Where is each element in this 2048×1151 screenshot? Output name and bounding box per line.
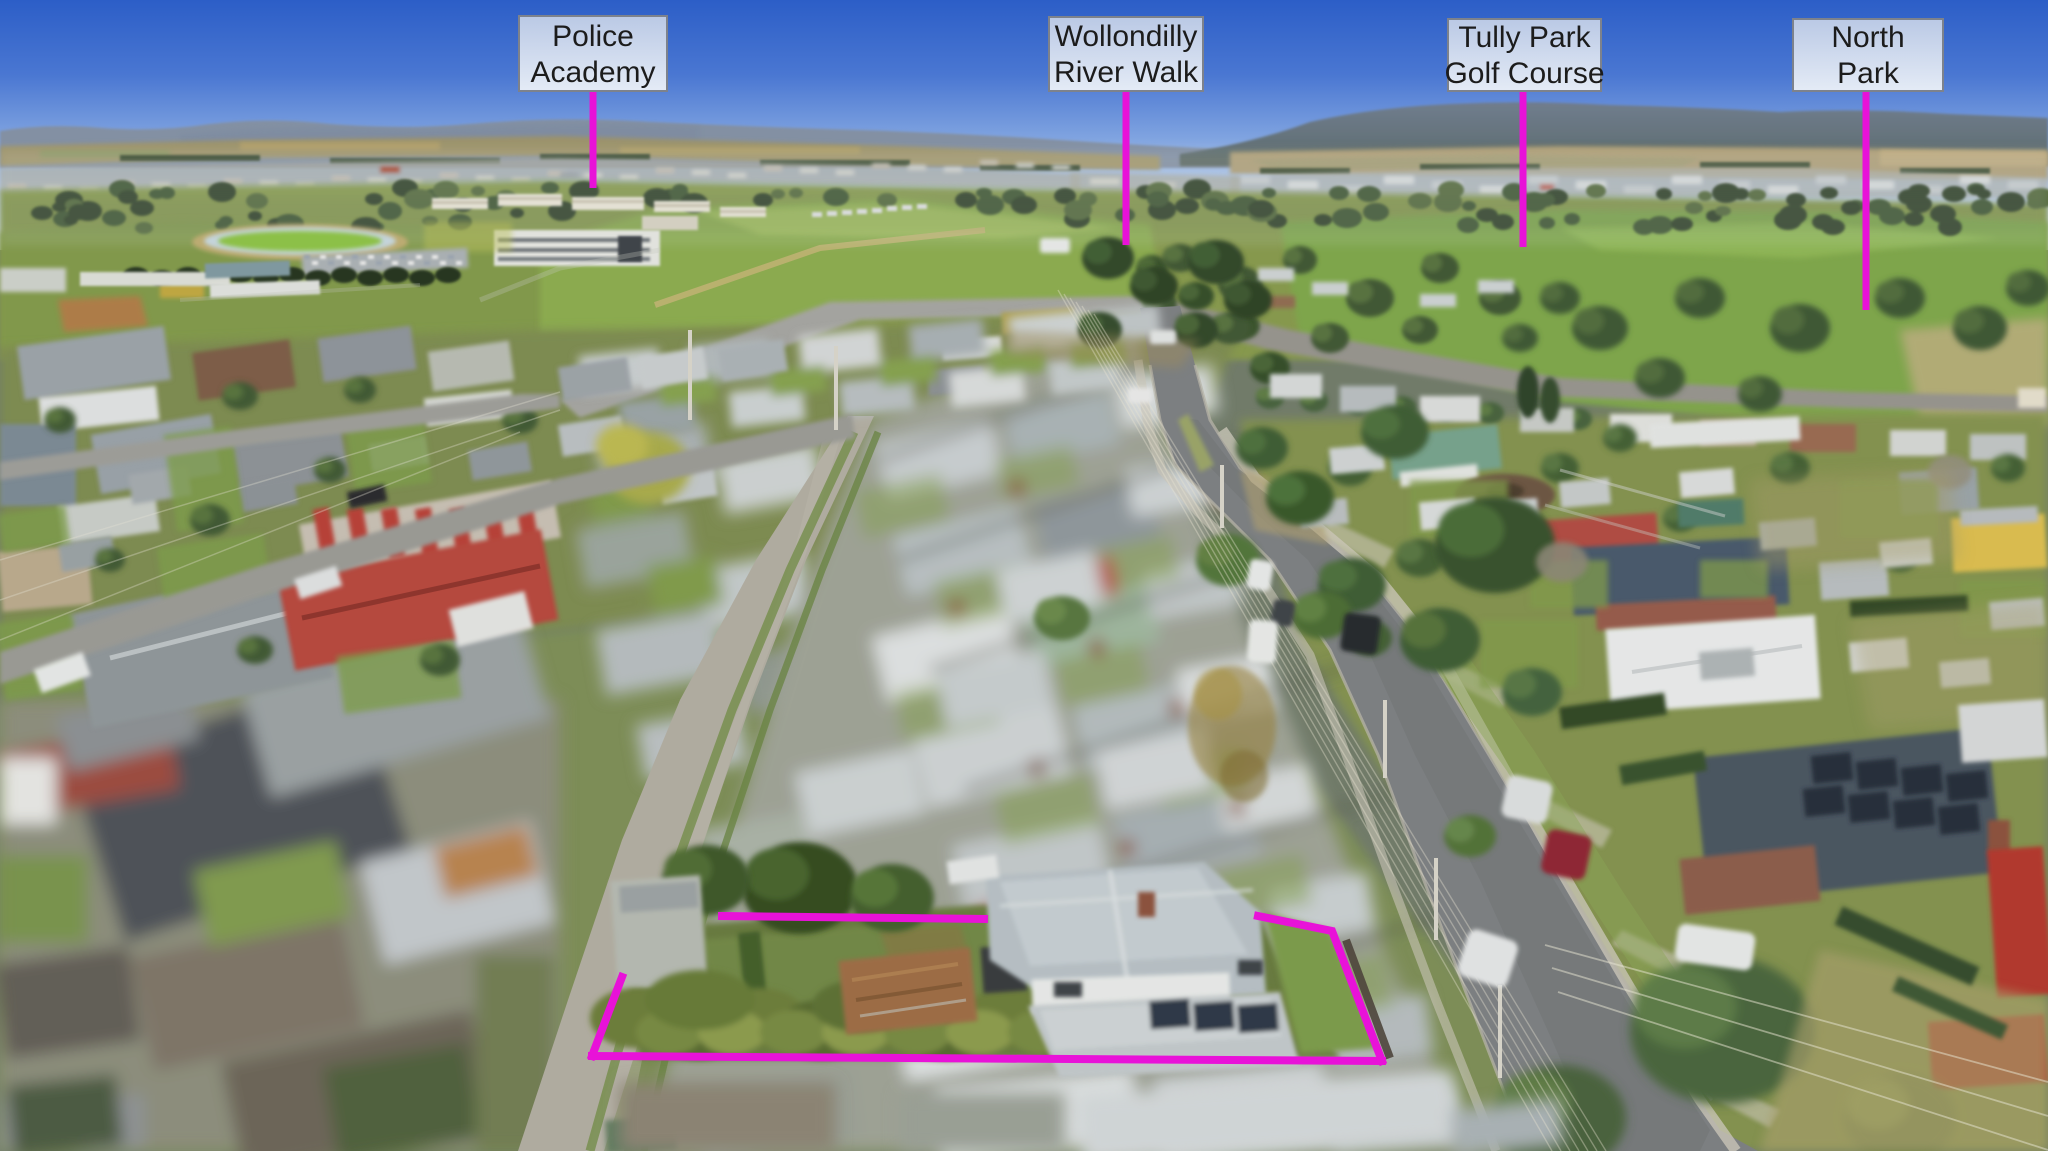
svg-text:Wollondilly: Wollondilly (1055, 20, 1198, 53)
svg-text:Academy: Academy (530, 56, 655, 89)
svg-text:Tully Park: Tully Park (1458, 21, 1591, 54)
svg-text:Park: Park (1837, 57, 1900, 90)
svg-text:Police: Police (552, 20, 634, 53)
svg-text:North: North (1831, 21, 1904, 54)
svg-text:River Walk: River Walk (1054, 56, 1199, 89)
svg-text:Golf Course: Golf Course (1444, 57, 1604, 90)
